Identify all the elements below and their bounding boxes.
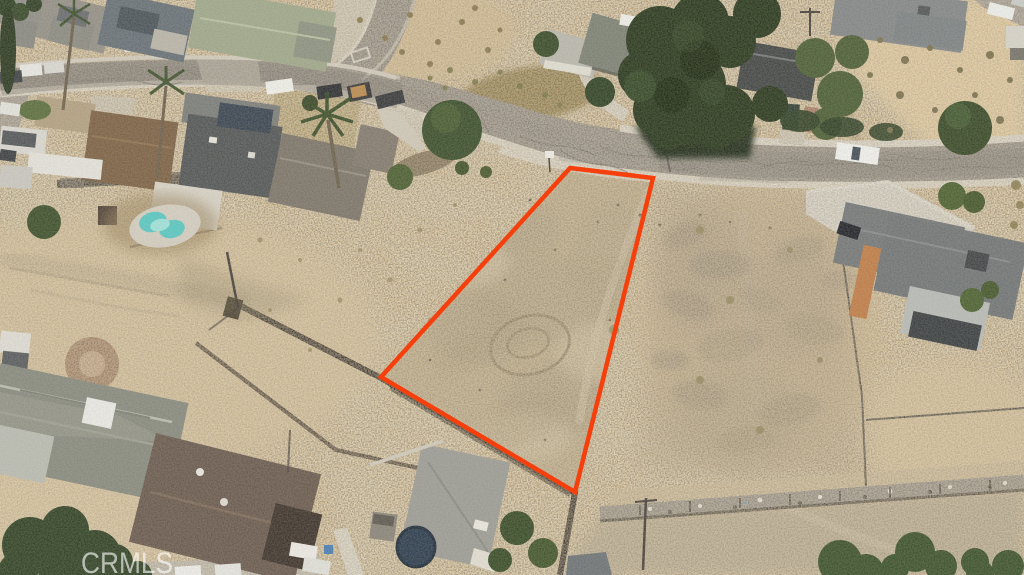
svg-text:CRMLS: CRMLS [81,547,173,575]
